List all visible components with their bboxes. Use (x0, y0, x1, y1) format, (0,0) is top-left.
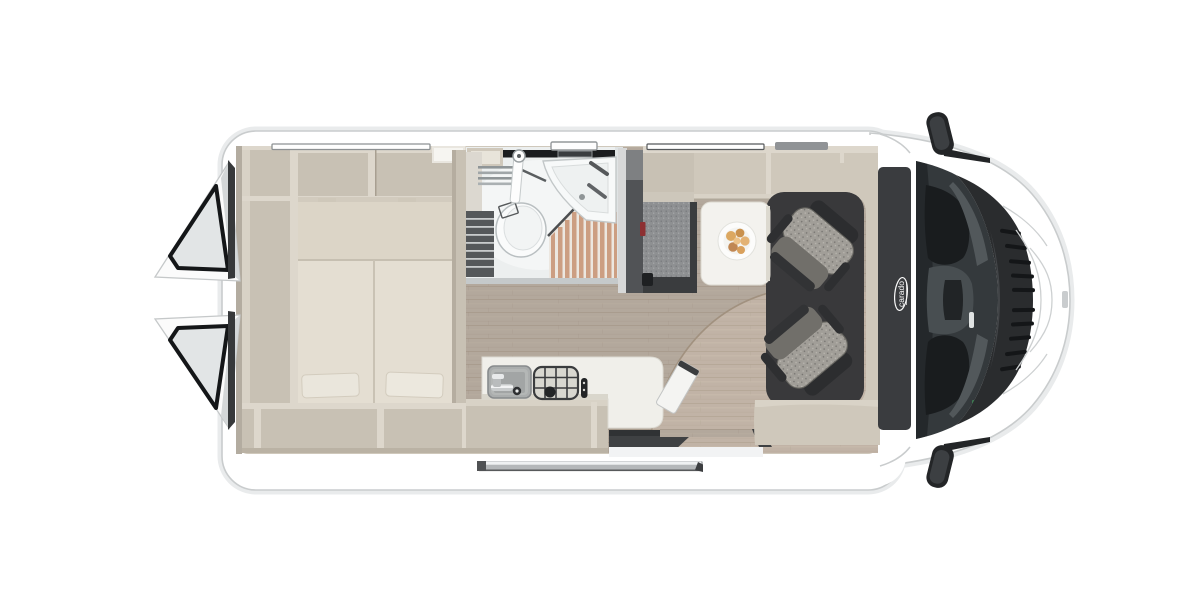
svg-text:carado: carado (896, 281, 906, 307)
